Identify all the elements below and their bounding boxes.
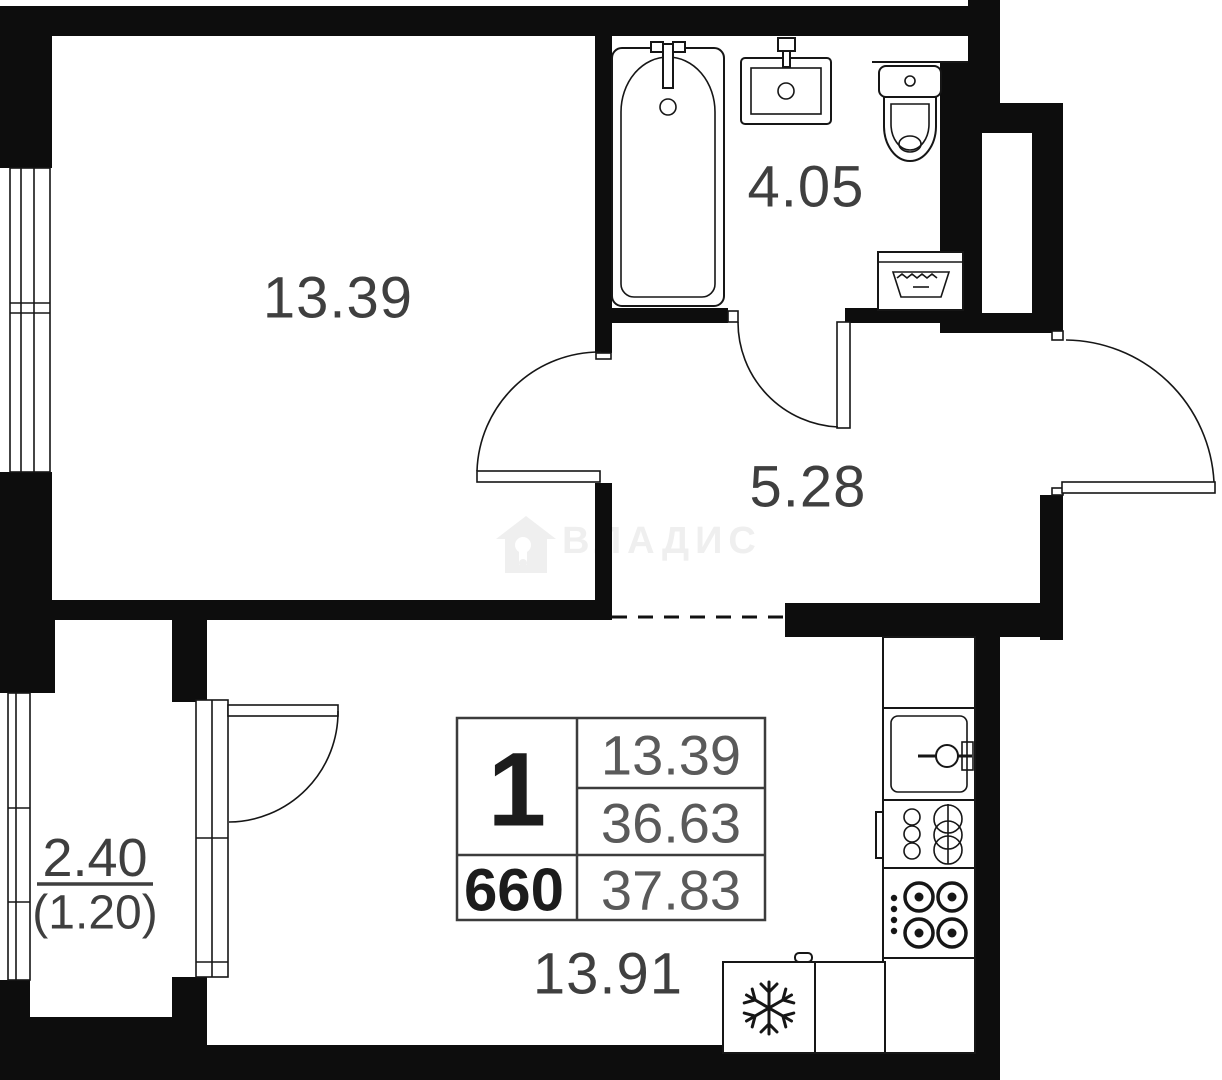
room-label-hallway: 5.28 bbox=[750, 455, 867, 520]
door-arc bbox=[229, 711, 338, 822]
watermark: ВЛАДИС bbox=[496, 516, 762, 573]
room-label-kitchen-living: 13.91 bbox=[533, 942, 683, 1007]
room-label-living: 13.39 bbox=[263, 266, 413, 331]
balcony-area-secondary: (1.20) bbox=[32, 887, 157, 940]
table-value-1: 13.39 bbox=[601, 724, 741, 787]
balcony-door bbox=[228, 705, 338, 822]
bath-sink-icon bbox=[741, 38, 831, 124]
toilet-icon bbox=[879, 66, 941, 161]
living-room-window bbox=[10, 168, 50, 472]
info-table: 1 660 13.39 36.63 37.83 bbox=[457, 718, 765, 924]
table-value-3: 37.83 bbox=[601, 859, 741, 922]
house-watermark-icon bbox=[496, 516, 556, 573]
balcony-door-window-unit bbox=[196, 700, 228, 977]
table-value-2: 36.63 bbox=[601, 792, 741, 855]
table-rooms-count: 1 bbox=[488, 732, 546, 849]
kitchen-sink-icon bbox=[883, 708, 975, 800]
fridge-icon bbox=[723, 953, 815, 1053]
room-label-bathroom: 4.05 bbox=[748, 155, 865, 220]
floor-plan: ВЛАДИС bbox=[0, 0, 1222, 1080]
floor-plan-canvas: ВЛАДИС bbox=[0, 0, 1222, 1080]
living-room-door bbox=[477, 352, 601, 482]
balcony-area-primary: 2.40 bbox=[42, 828, 147, 888]
watermark-text: ВЛАДИС bbox=[562, 520, 762, 562]
wall-niche bbox=[857, 36, 968, 62]
bathtub-icon bbox=[612, 42, 724, 306]
washing-machine-icon bbox=[878, 252, 963, 310]
cooktop-icon bbox=[883, 868, 975, 958]
door-arc bbox=[738, 322, 838, 427]
bathroom-door bbox=[738, 322, 850, 428]
oven-icon bbox=[876, 800, 975, 868]
door-arc bbox=[1066, 340, 1214, 482]
table-code: 660 bbox=[464, 857, 564, 924]
room-label-balcony: 2.40 (1.20) bbox=[32, 828, 157, 940]
entrance-door bbox=[1062, 340, 1215, 493]
balcony-window bbox=[8, 693, 30, 980]
door-arc bbox=[477, 352, 601, 471]
